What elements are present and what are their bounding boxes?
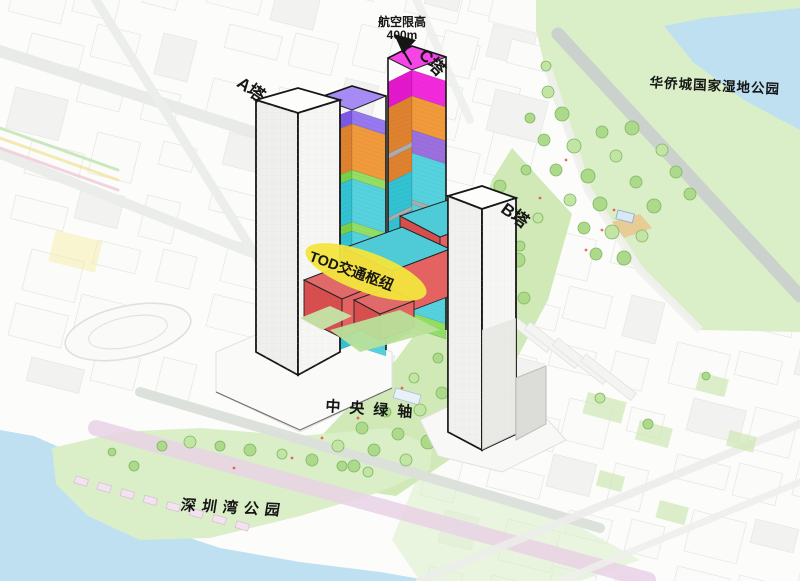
aviation-limit-label: 航空限高 400m: [364, 16, 440, 41]
aviation-limit-line1: 航空限高: [364, 16, 440, 29]
planning-rendering: 航空限高 400m C塔 A塔 B塔 TOD交通枢纽 中央绿轴 深圳湾公园 华侨…: [0, 0, 800, 581]
aviation-limit-line2: 400m: [364, 29, 440, 42]
